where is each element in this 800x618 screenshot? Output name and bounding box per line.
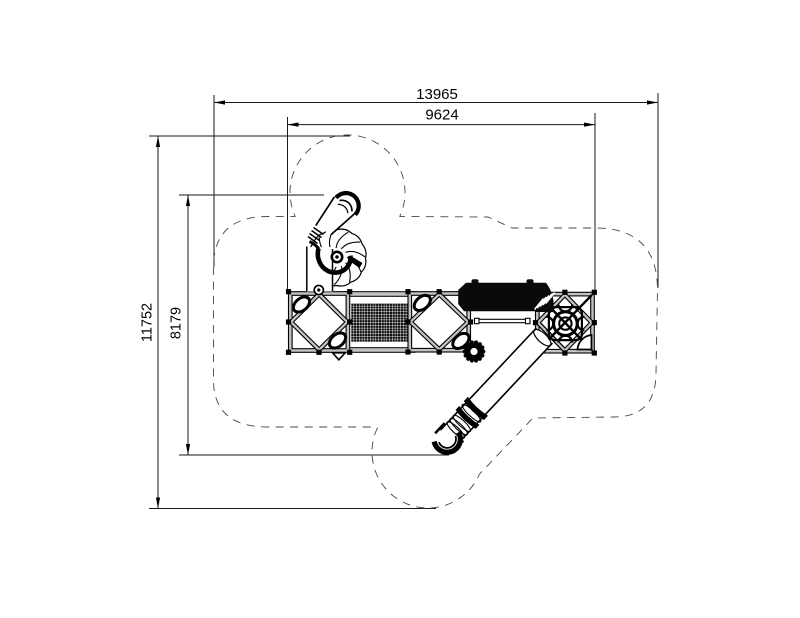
svg-text:11752: 11752: [140, 303, 156, 342]
svg-text:8179: 8179: [169, 307, 185, 339]
svg-text:13965: 13965: [416, 86, 458, 103]
svg-text:9624: 9624: [425, 107, 458, 124]
